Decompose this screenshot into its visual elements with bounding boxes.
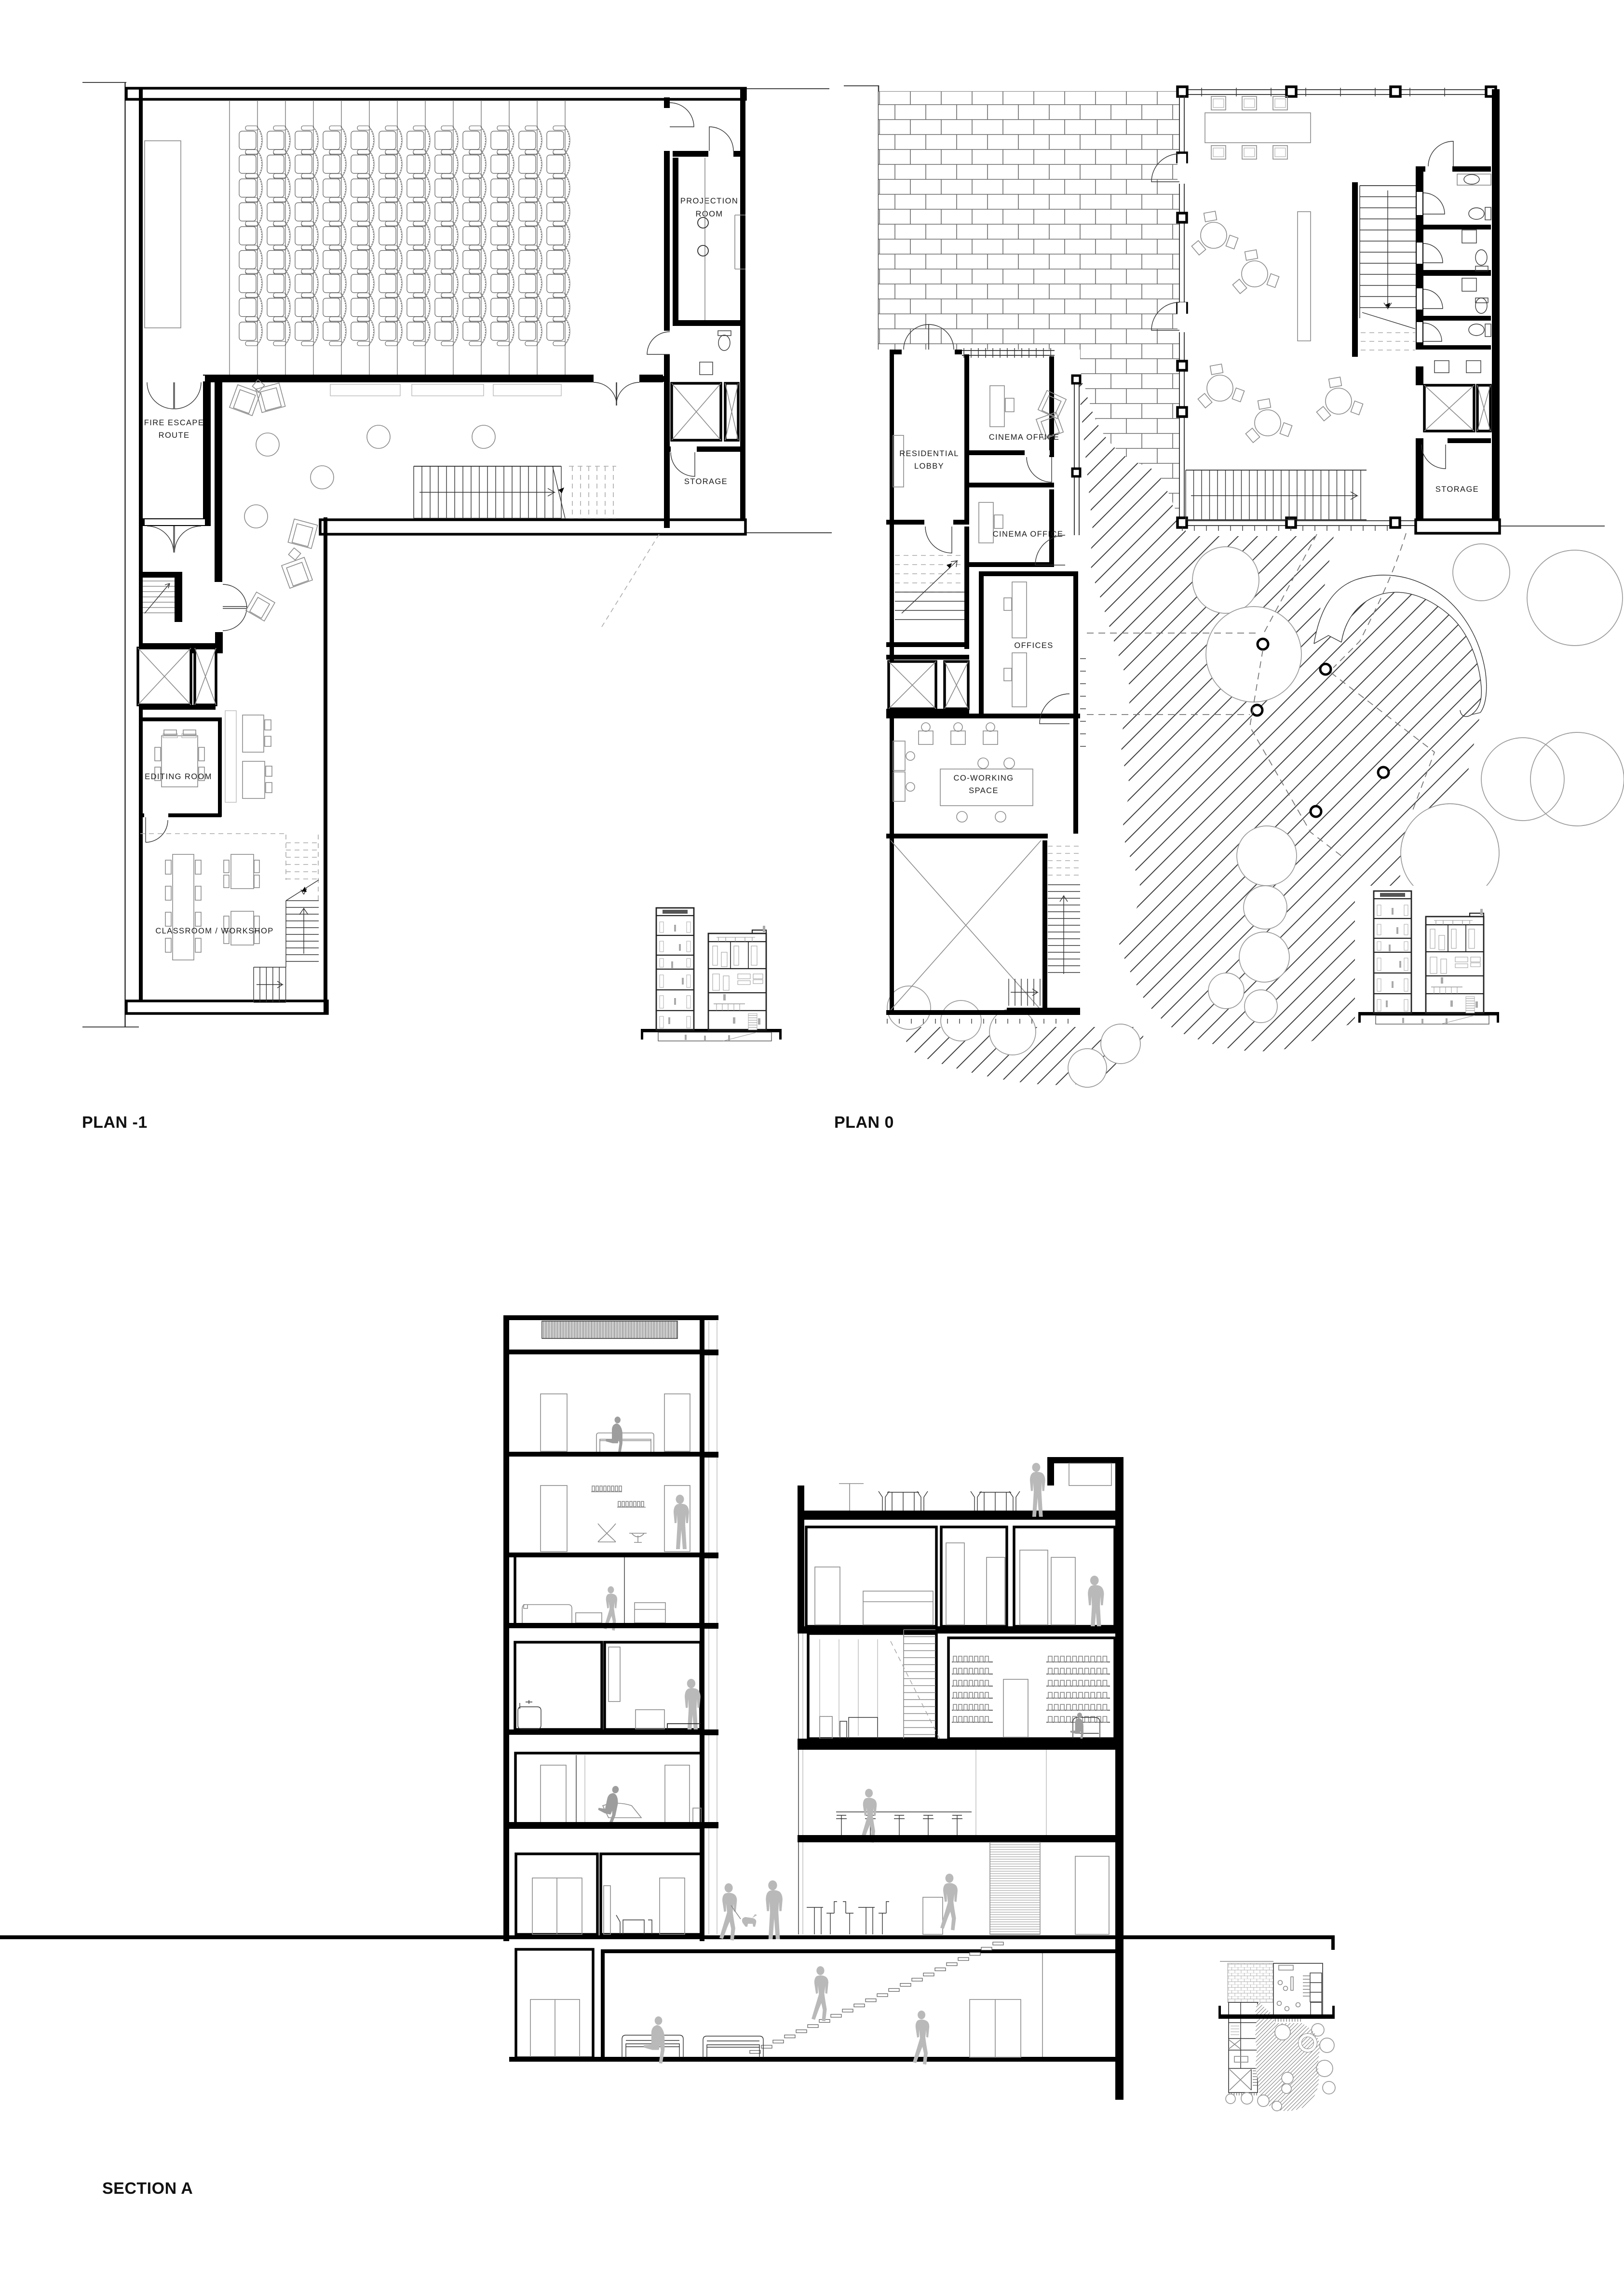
- svg-text:ROUTE: ROUTE: [159, 431, 190, 440]
- svg-text:EDITING ROOM: EDITING ROOM: [145, 772, 212, 781]
- svg-text:STORAGE: STORAGE: [684, 477, 728, 486]
- svg-text:RESIDENTIAL: RESIDENTIAL: [899, 449, 959, 458]
- svg-text:ROOM: ROOM: [696, 210, 723, 218]
- svg-text:LOBBY: LOBBY: [914, 462, 944, 471]
- svg-text:CO-WORKING: CO-WORKING: [954, 774, 1014, 783]
- svg-text:CINEMA OFFICE: CINEMA OFFICE: [989, 433, 1060, 442]
- svg-text:STORAGE: STORAGE: [1435, 485, 1479, 494]
- svg-text:CLASSROOM / WORKSHOP: CLASSROOM / WORKSHOP: [155, 927, 273, 935]
- svg-text:PROJECTION: PROJECTION: [680, 197, 738, 205]
- svg-text:PLAN 0: PLAN 0: [834, 1113, 894, 1132]
- svg-text:CINEMA OFFICE: CINEMA OFFICE: [993, 530, 1064, 539]
- svg-text:SECTION A: SECTION A: [102, 2179, 193, 2198]
- svg-text:OFFICES: OFFICES: [1014, 641, 1053, 650]
- svg-text:SPACE: SPACE: [969, 786, 999, 795]
- svg-text:FIRE ESCAPE: FIRE ESCAPE: [144, 419, 204, 427]
- svg-text:PLAN -1: PLAN -1: [82, 1113, 148, 1132]
